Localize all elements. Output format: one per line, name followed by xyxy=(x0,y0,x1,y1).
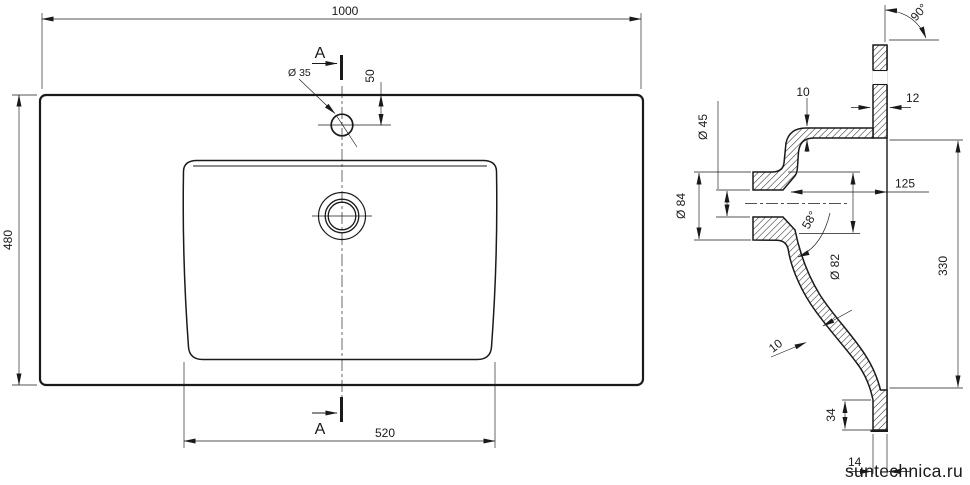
section-mark-bottom: A xyxy=(312,397,342,438)
dim-basin-opening-depth-label: 330 xyxy=(936,256,950,276)
faucet-hole xyxy=(318,114,391,136)
dim-faucet-offset-label: 50 xyxy=(363,69,377,83)
section-mark-top-label: A xyxy=(315,45,326,62)
dim-corner-angle: 90° xyxy=(885,1,939,42)
dim-faucet-offset: 50 xyxy=(363,69,381,125)
dim-drain-cone-angle: 58° xyxy=(798,208,830,257)
dim-deck-edge-thickness-label: 12 xyxy=(906,91,920,105)
dim-front-rim-width: 34 xyxy=(824,400,871,430)
faucet-diameter-label: Ø 35 xyxy=(288,67,311,79)
dim-drain-bore-label: Ø 45 xyxy=(696,114,710,140)
deck-section xyxy=(872,45,888,138)
dim-overall-depth: 480 xyxy=(1,95,37,385)
watermark: suntechnica.ru xyxy=(845,461,963,481)
dim-basin-bottom-width: 520 xyxy=(184,362,495,448)
dim-drain-bore: Ø 45 xyxy=(696,101,750,217)
section-mark-top: A xyxy=(312,45,342,80)
rim-section xyxy=(753,128,873,190)
drawing-canvas: 1000 480 520 50 Ø 35 xyxy=(0,0,970,485)
dim-corner-angle-label: 90° xyxy=(908,1,931,24)
dim-basin-bottom-width-label: 520 xyxy=(375,426,395,440)
bowl-section xyxy=(753,217,887,430)
deck-material xyxy=(873,45,887,138)
dim-drain-flange: Ø 84 xyxy=(674,172,751,240)
drain-hole xyxy=(312,193,372,240)
technical-drawing: 1000 480 520 50 Ø 35 xyxy=(0,0,970,485)
faucet-hole-cut xyxy=(872,71,888,85)
plan-view: 1000 480 520 50 Ø 35 xyxy=(1,4,643,448)
dim-drain-depth-label: 125 xyxy=(895,177,915,191)
section-mark-bottom-label: A xyxy=(315,421,326,438)
dim-drain-flange-label: Ø 84 xyxy=(674,193,688,219)
basin-outline xyxy=(183,161,497,360)
dim-drain-cone-angle-label: 58° xyxy=(799,208,820,231)
dim-overall-width-label: 1000 xyxy=(332,4,359,18)
dim-overall-depth-label: 480 xyxy=(1,230,15,250)
dim-drain-cone-diameter-label: Ø 82 xyxy=(828,254,842,280)
section-view: 90° 12 10 Ø 45 Ø 84 xyxy=(674,1,963,474)
dim-drain-depth: 125 xyxy=(791,177,929,193)
dim-rim-wall-thickness-label: 10 xyxy=(796,85,810,99)
dim-front-rim-width-label: 34 xyxy=(824,408,838,422)
